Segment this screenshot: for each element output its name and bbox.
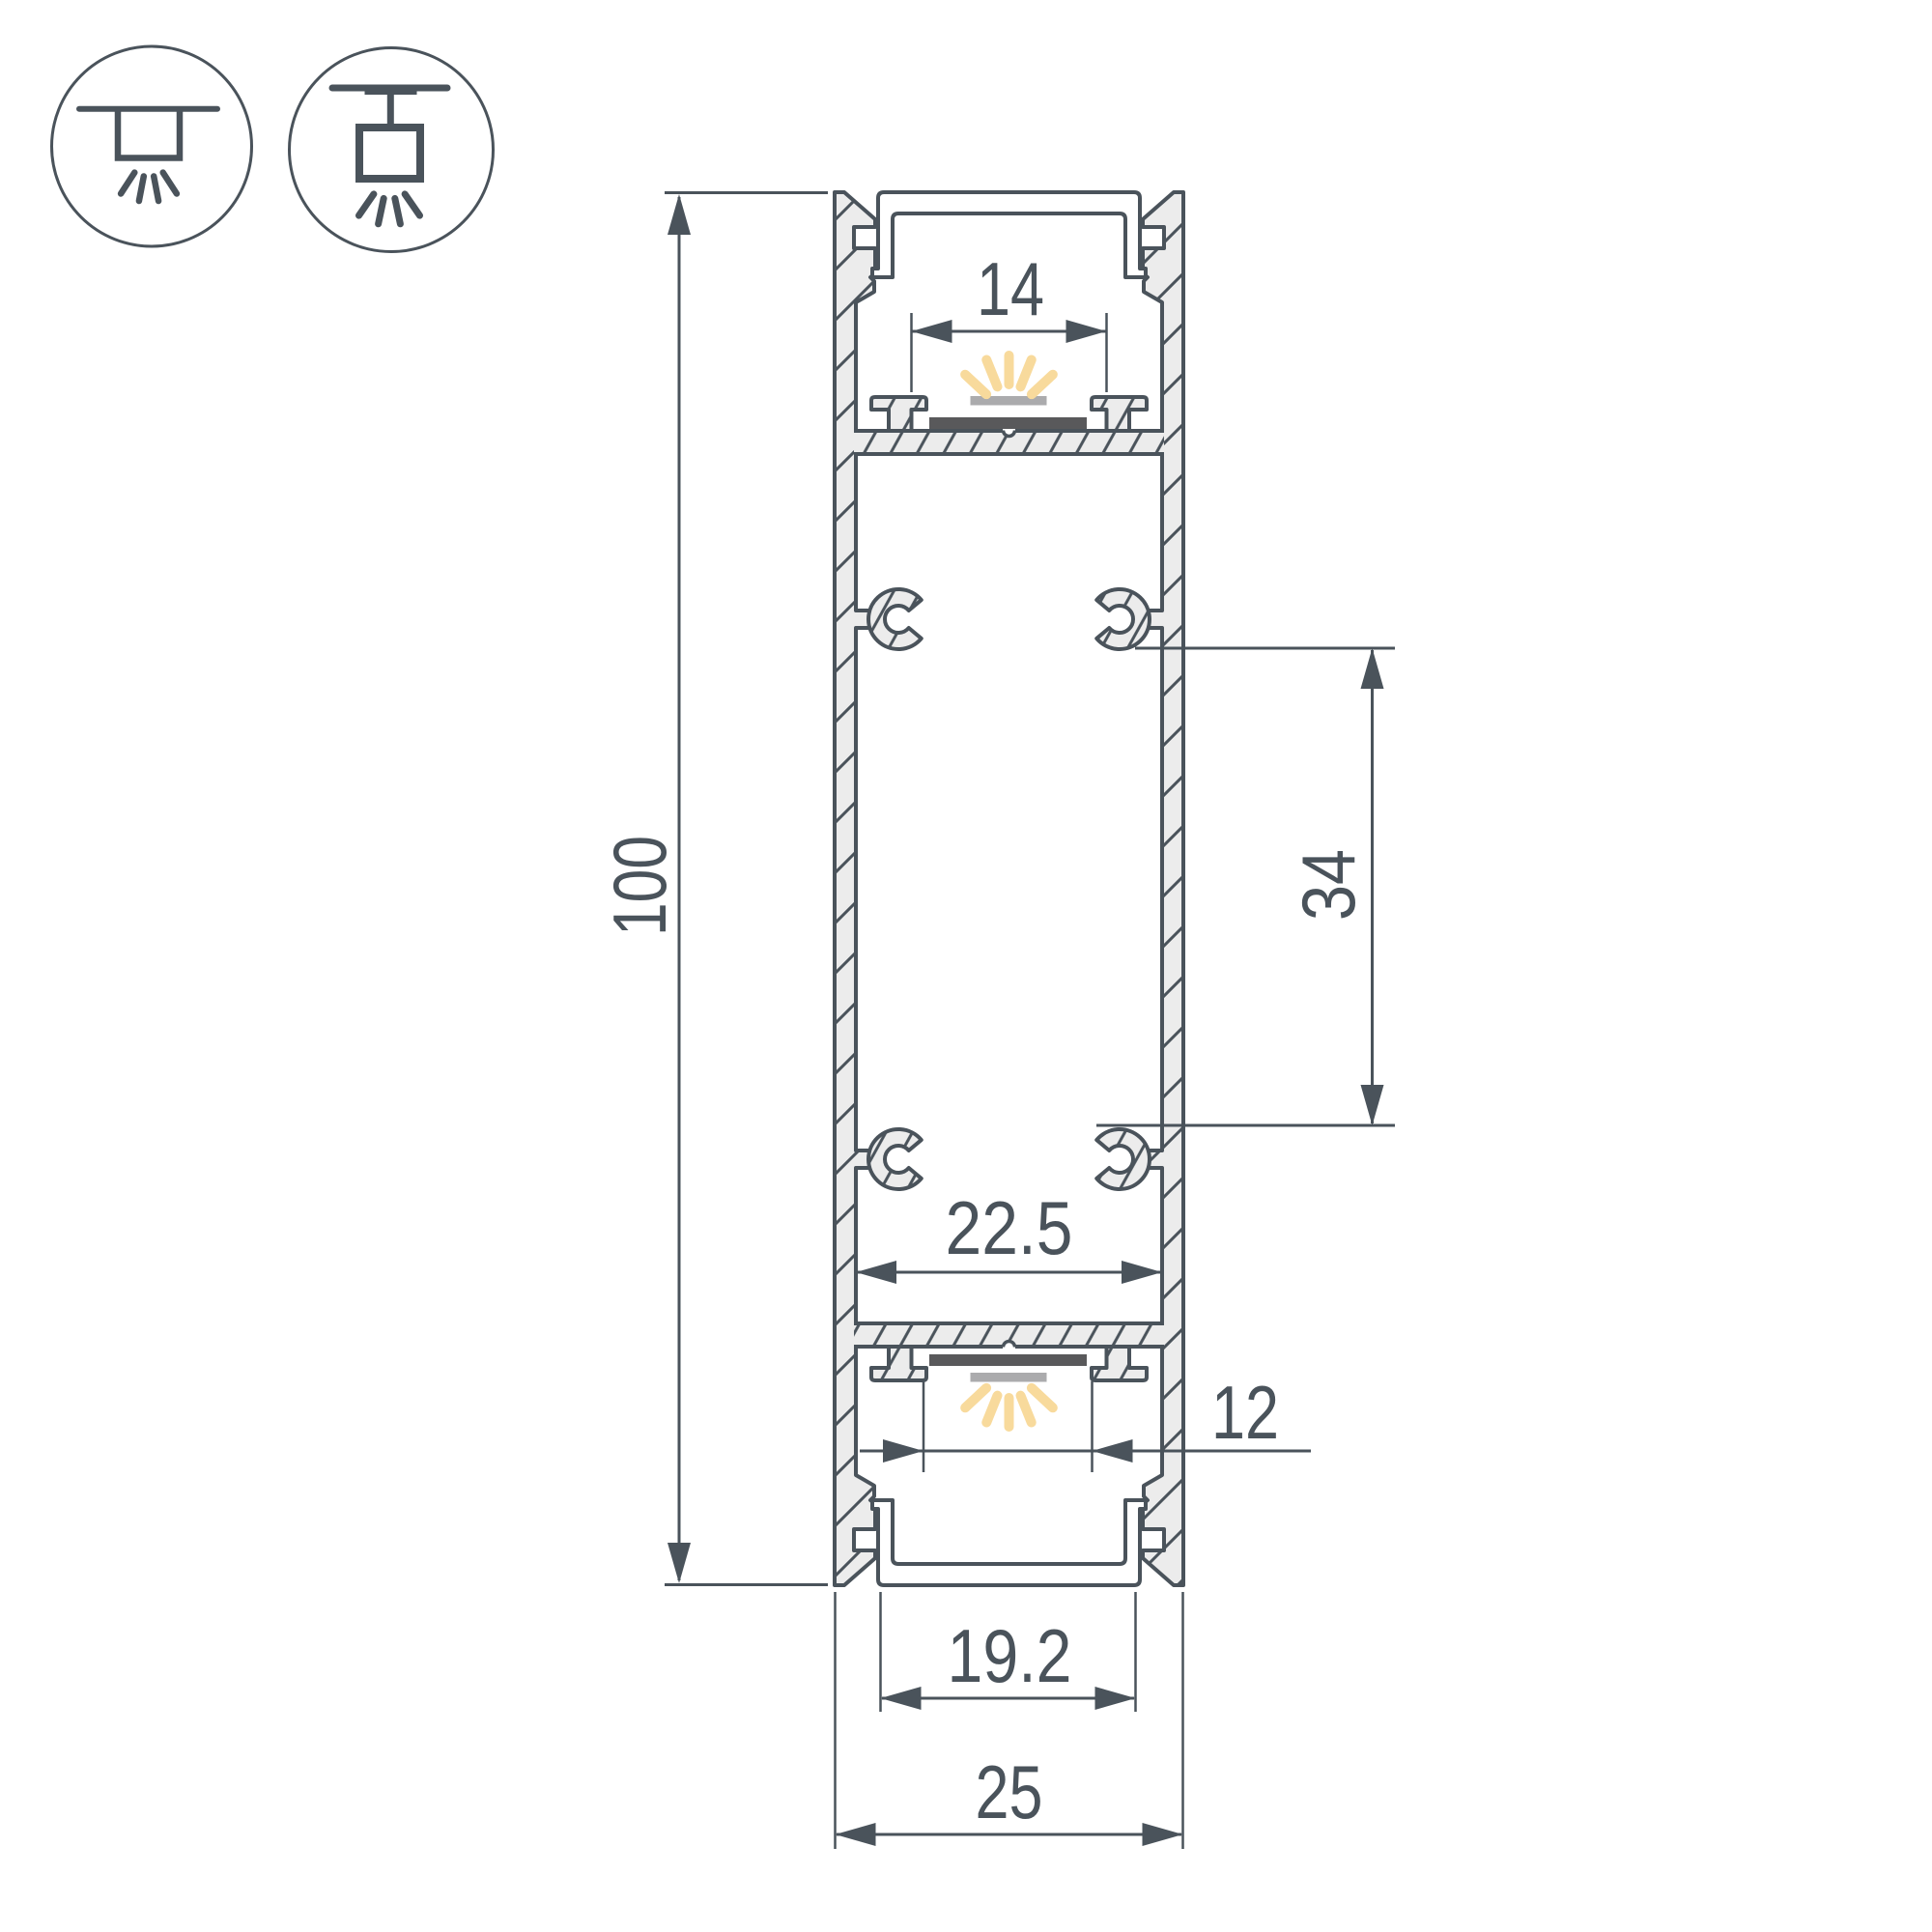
- svg-text:12: 12: [1211, 1370, 1279, 1455]
- svg-text:14: 14: [977, 246, 1044, 331]
- svg-text:100: 100: [597, 836, 682, 936]
- svg-text:25: 25: [976, 1749, 1043, 1834]
- svg-text:19.2: 19.2: [948, 1613, 1072, 1698]
- svg-text:22.5: 22.5: [946, 1185, 1073, 1270]
- svg-text:34: 34: [1286, 849, 1371, 921]
